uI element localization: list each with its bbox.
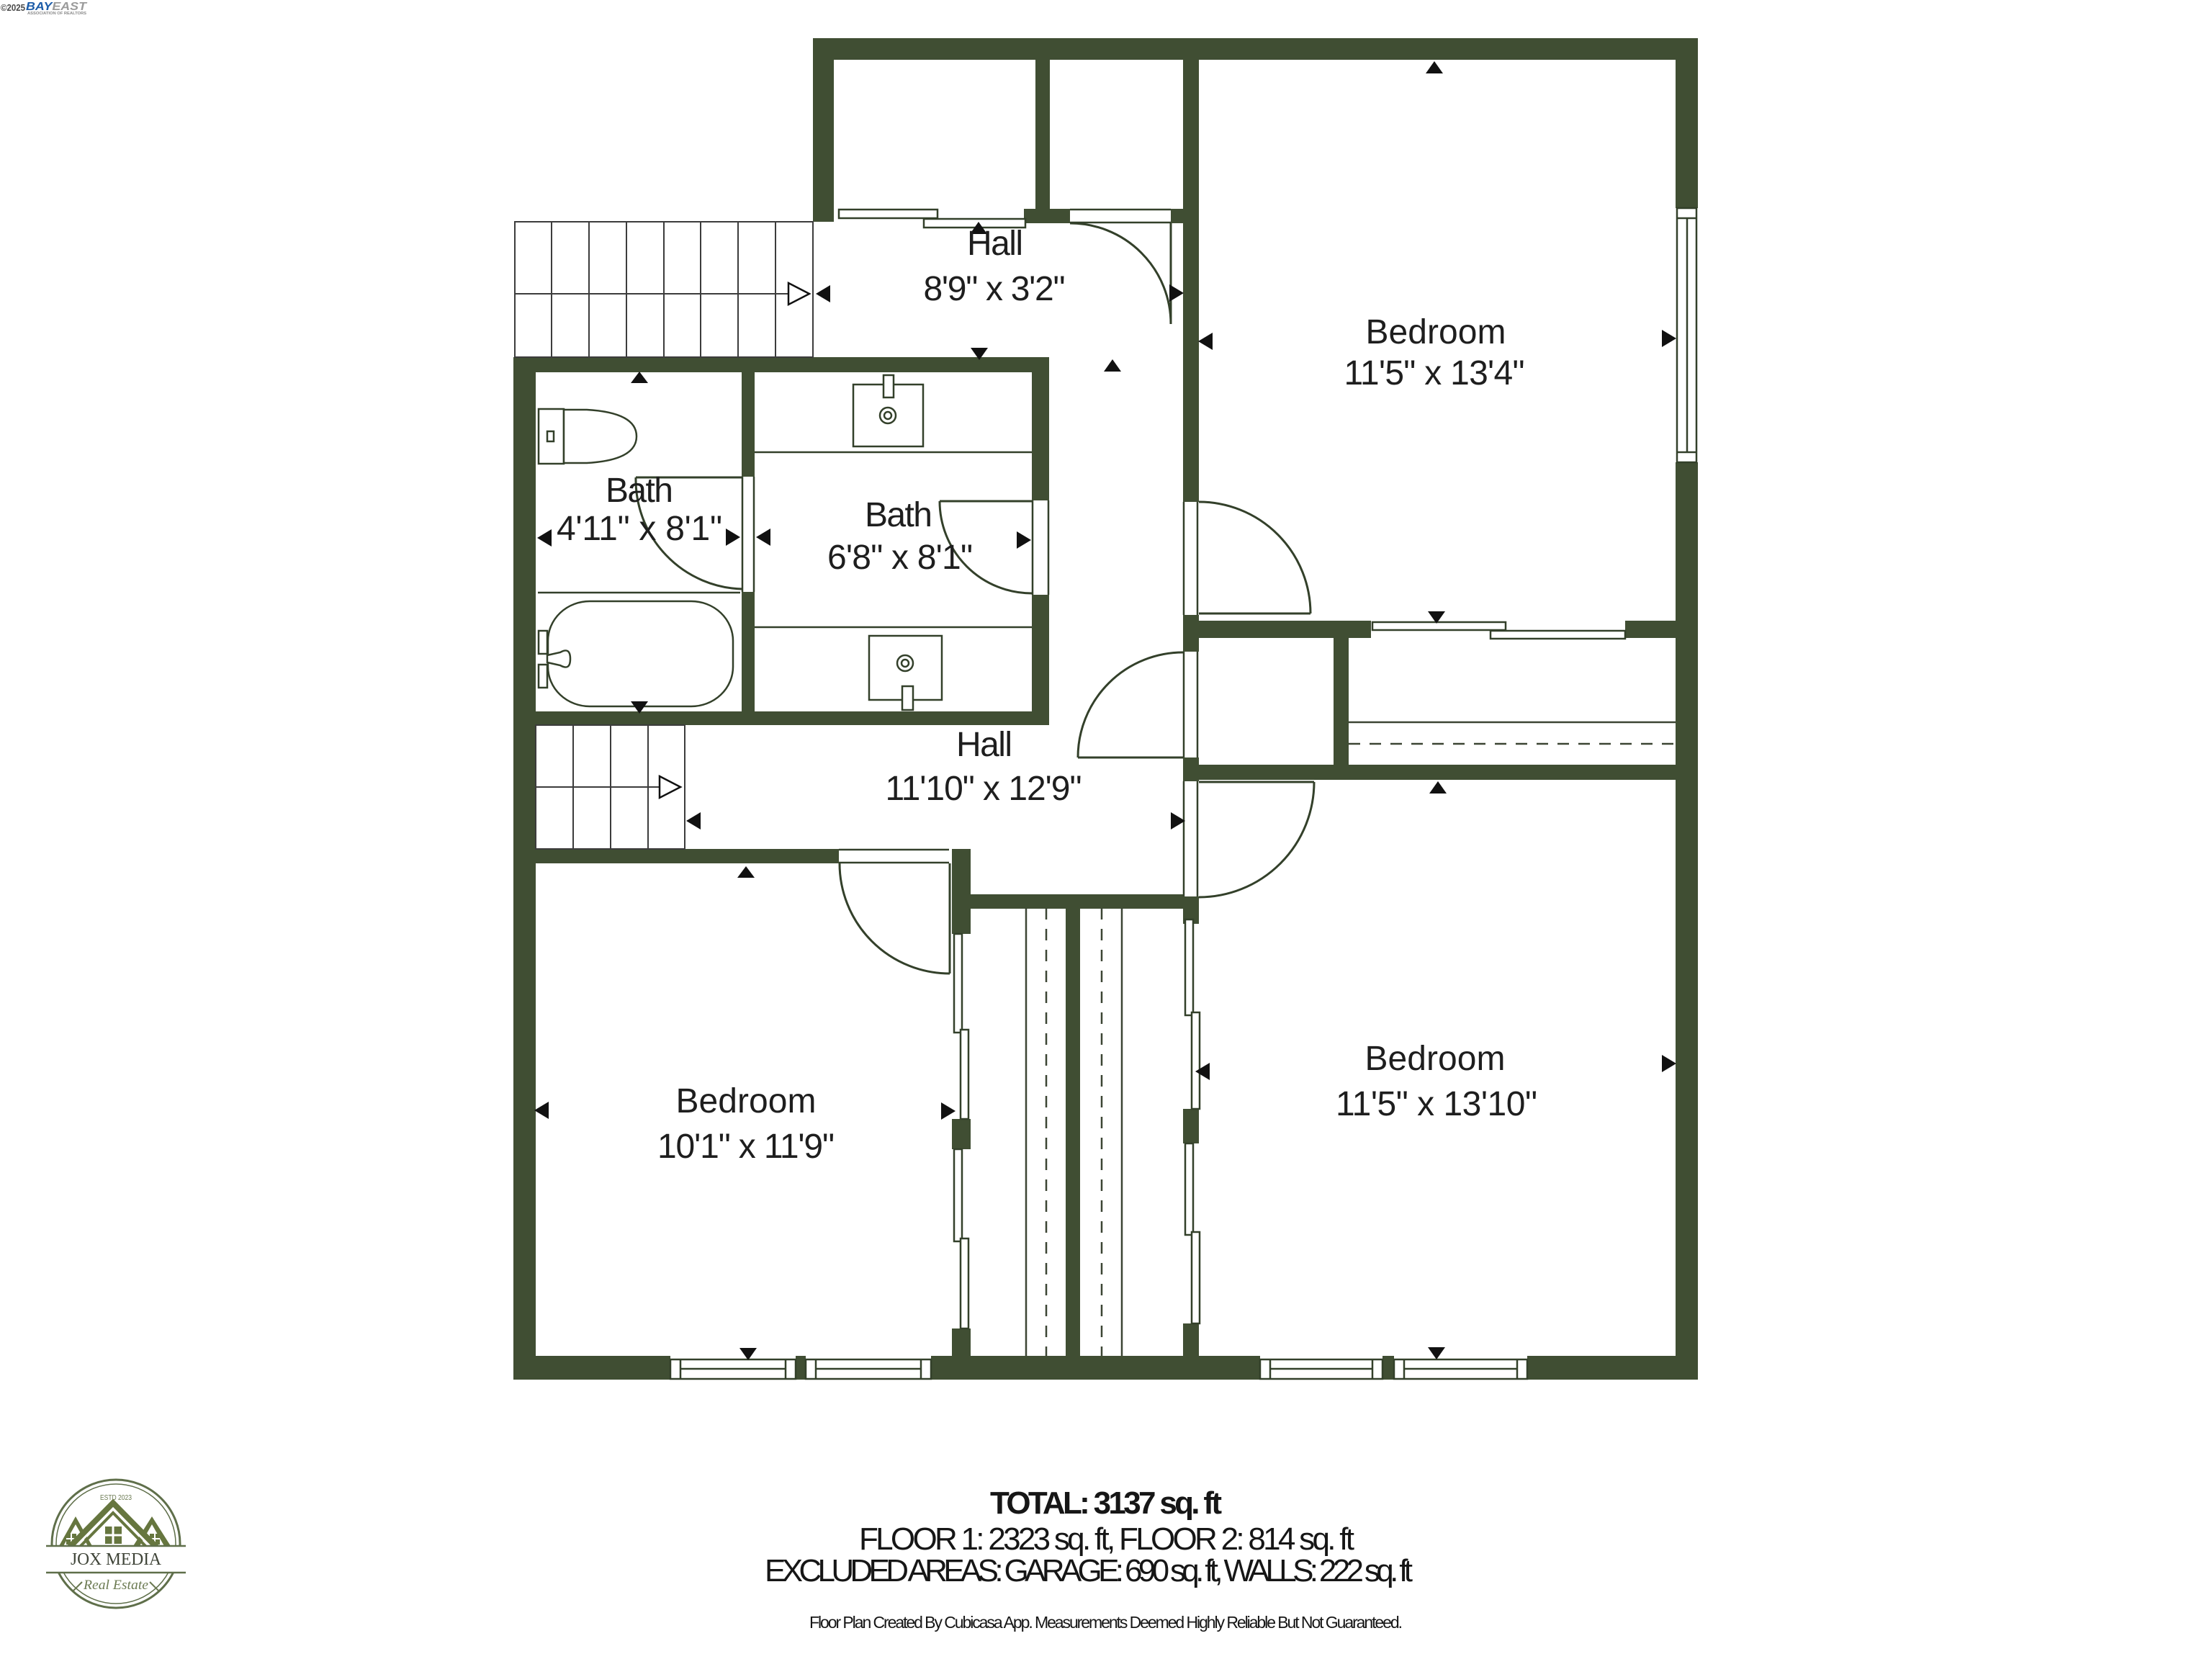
- svg-text:ESTD 2023: ESTD 2023: [100, 1494, 132, 1502]
- svg-text:TOTAL: 3137 sq. ft: TOTAL: 3137 sq. ft: [990, 1485, 1222, 1521]
- svg-text:11'5" x 13'4": 11'5" x 13'4": [1344, 354, 1525, 392]
- svg-text:Hall: Hall: [967, 225, 1023, 263]
- svg-text:Bedroom: Bedroom: [1366, 313, 1506, 351]
- svg-text:Bath: Bath: [606, 472, 673, 510]
- svg-text:Real Estate: Real Estate: [83, 1578, 148, 1593]
- svg-text:Bedroom: Bedroom: [676, 1082, 817, 1120]
- svg-text:4'11" x 8'1": 4'11" x 8'1": [557, 510, 722, 548]
- svg-text:11'10" x 12'9": 11'10" x 12'9": [886, 770, 1082, 808]
- svg-text:8'9" x 3'2": 8'9" x 3'2": [924, 270, 1066, 308]
- svg-text:10'1" x 11'9": 10'1" x 11'9": [657, 1128, 835, 1166]
- svg-text:ASSOCIATION OF REALTORS: ASSOCIATION OF REALTORS: [27, 12, 87, 16]
- svg-text:©2025: ©2025: [1, 2, 25, 13]
- svg-text:Floor Plan Created By Cubicasa: Floor Plan Created By Cubicasa App. Meas…: [809, 1613, 1403, 1632]
- svg-text:Bedroom: Bedroom: [1365, 1040, 1506, 1078]
- svg-text:FLOOR 1: 2323 sq. ft, FLOOR 2:: FLOOR 1: 2323 sq. ft, FLOOR 2: 814 sq. f…: [859, 1521, 1354, 1557]
- svg-text:6'8" x 8'1": 6'8" x 8'1": [827, 539, 973, 577]
- svg-text:EXCLUDED AREAS: GARAGE: 690 sq: EXCLUDED AREAS: GARAGE: 690 sq. ft, WALL…: [765, 1553, 1413, 1588]
- svg-text:11'5" x 13'10": 11'5" x 13'10": [1336, 1085, 1537, 1123]
- svg-text:Hall: Hall: [956, 726, 1012, 764]
- svg-text:Bath: Bath: [865, 496, 932, 534]
- svg-text:JOX MEDIA: JOX MEDIA: [71, 1550, 162, 1569]
